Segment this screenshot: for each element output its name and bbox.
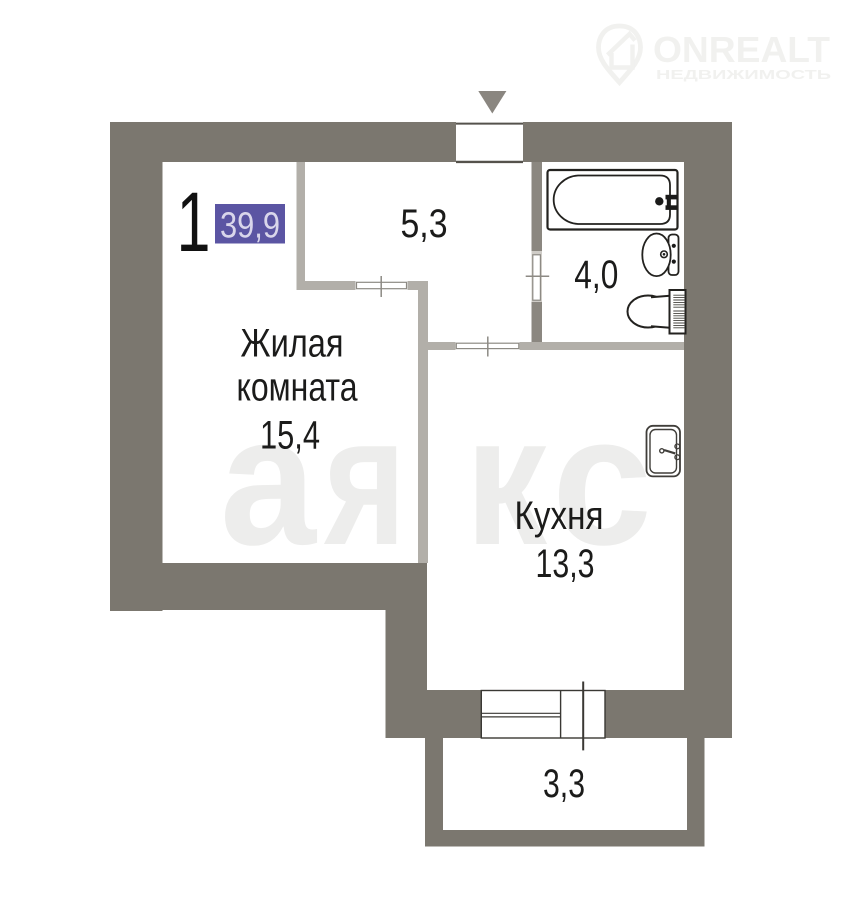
svg-text:13,3: 13,3 — [536, 542, 595, 586]
svg-text:комната: комната — [237, 366, 359, 410]
svg-text:39,9: 39,9 — [220, 205, 280, 246]
svg-text:ONREALT: ONREALT — [653, 29, 830, 70]
svg-text:1: 1 — [177, 175, 211, 269]
svg-text:15,4: 15,4 — [260, 414, 320, 458]
svg-text:5,3: 5,3 — [401, 202, 448, 246]
svg-text:4,0: 4,0 — [574, 253, 618, 297]
svg-text:НЕДВИЖИМОСТЬ: НЕДВИЖИМОСТЬ — [656, 67, 831, 82]
svg-text:Кухня: Кухня — [515, 494, 604, 538]
svg-text:Жилая: Жилая — [241, 322, 344, 366]
svg-text:3,3: 3,3 — [543, 762, 585, 806]
